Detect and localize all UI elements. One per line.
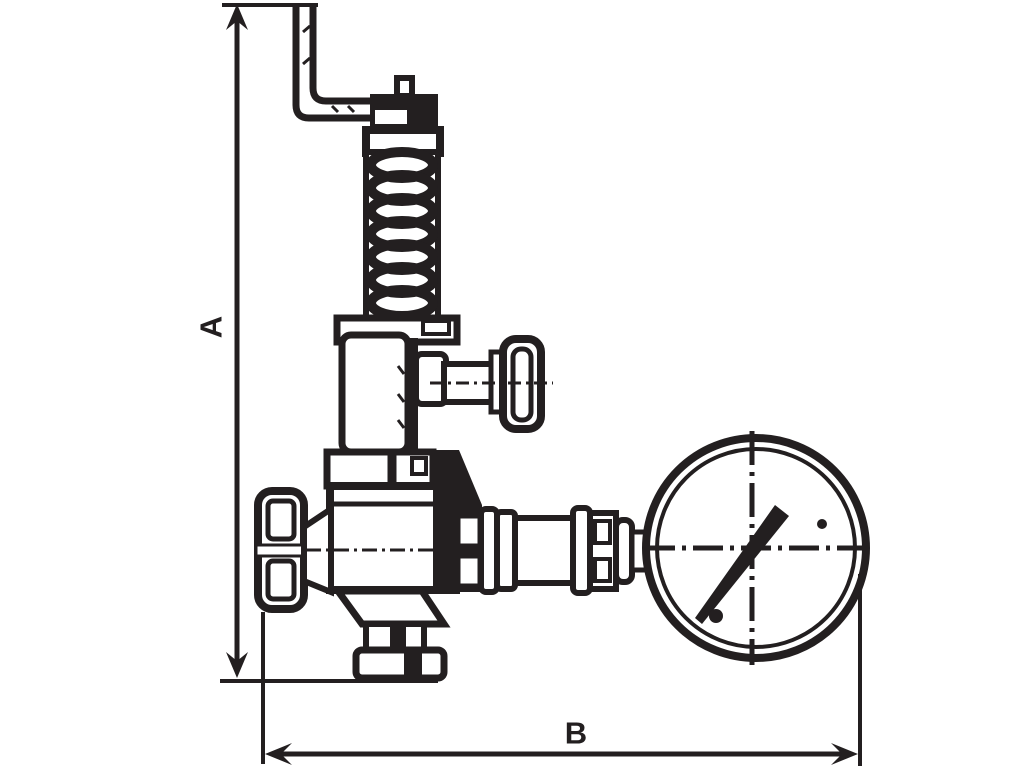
- collar-window: [423, 321, 449, 334]
- bottom-outlet-flange: [356, 650, 444, 678]
- valve-dimension-diagram: A: [0, 0, 1024, 766]
- bottom-outlet: [338, 591, 444, 678]
- handwheel-hub-slot: [256, 545, 303, 556]
- fitting-window: [595, 521, 610, 543]
- dimension-b-label: B: [565, 716, 587, 751]
- gauge-screw-dot: [817, 519, 827, 529]
- spring-housing: [337, 152, 457, 342]
- technical-drawing-canvas: A: [0, 0, 1024, 766]
- flange-core: [404, 652, 422, 677]
- lever-bracket: [296, 3, 372, 118]
- bracket-tick: [348, 106, 354, 112]
- pipe-section: [515, 518, 573, 583]
- dimension-a-label: A: [194, 316, 229, 338]
- bracket-tick: [303, 58, 310, 64]
- bracket-tick: [332, 106, 338, 112]
- boss-step: [458, 516, 480, 546]
- cap-window: [375, 110, 407, 124]
- bonnet-shell: [342, 335, 408, 452]
- gauge-screw-dot: [709, 609, 723, 623]
- bonnet-flange: [327, 452, 433, 486]
- body-taper: [338, 591, 444, 624]
- side-outlet: [416, 339, 553, 429]
- fitting-window: [595, 559, 610, 581]
- gauge-pipe-fittings: [481, 508, 648, 593]
- bracket-inner-edge: [313, 3, 372, 101]
- handwheel-window: [268, 501, 294, 539]
- handwheel-window: [268, 561, 294, 599]
- bracket-tick: [303, 26, 310, 32]
- cap-pin: [397, 78, 412, 96]
- bonnet: [342, 335, 418, 452]
- flange-window: [412, 458, 426, 474]
- pressure-gauge: [645, 431, 873, 665]
- boss-step: [458, 556, 480, 586]
- adjusting-cap: [366, 78, 440, 153]
